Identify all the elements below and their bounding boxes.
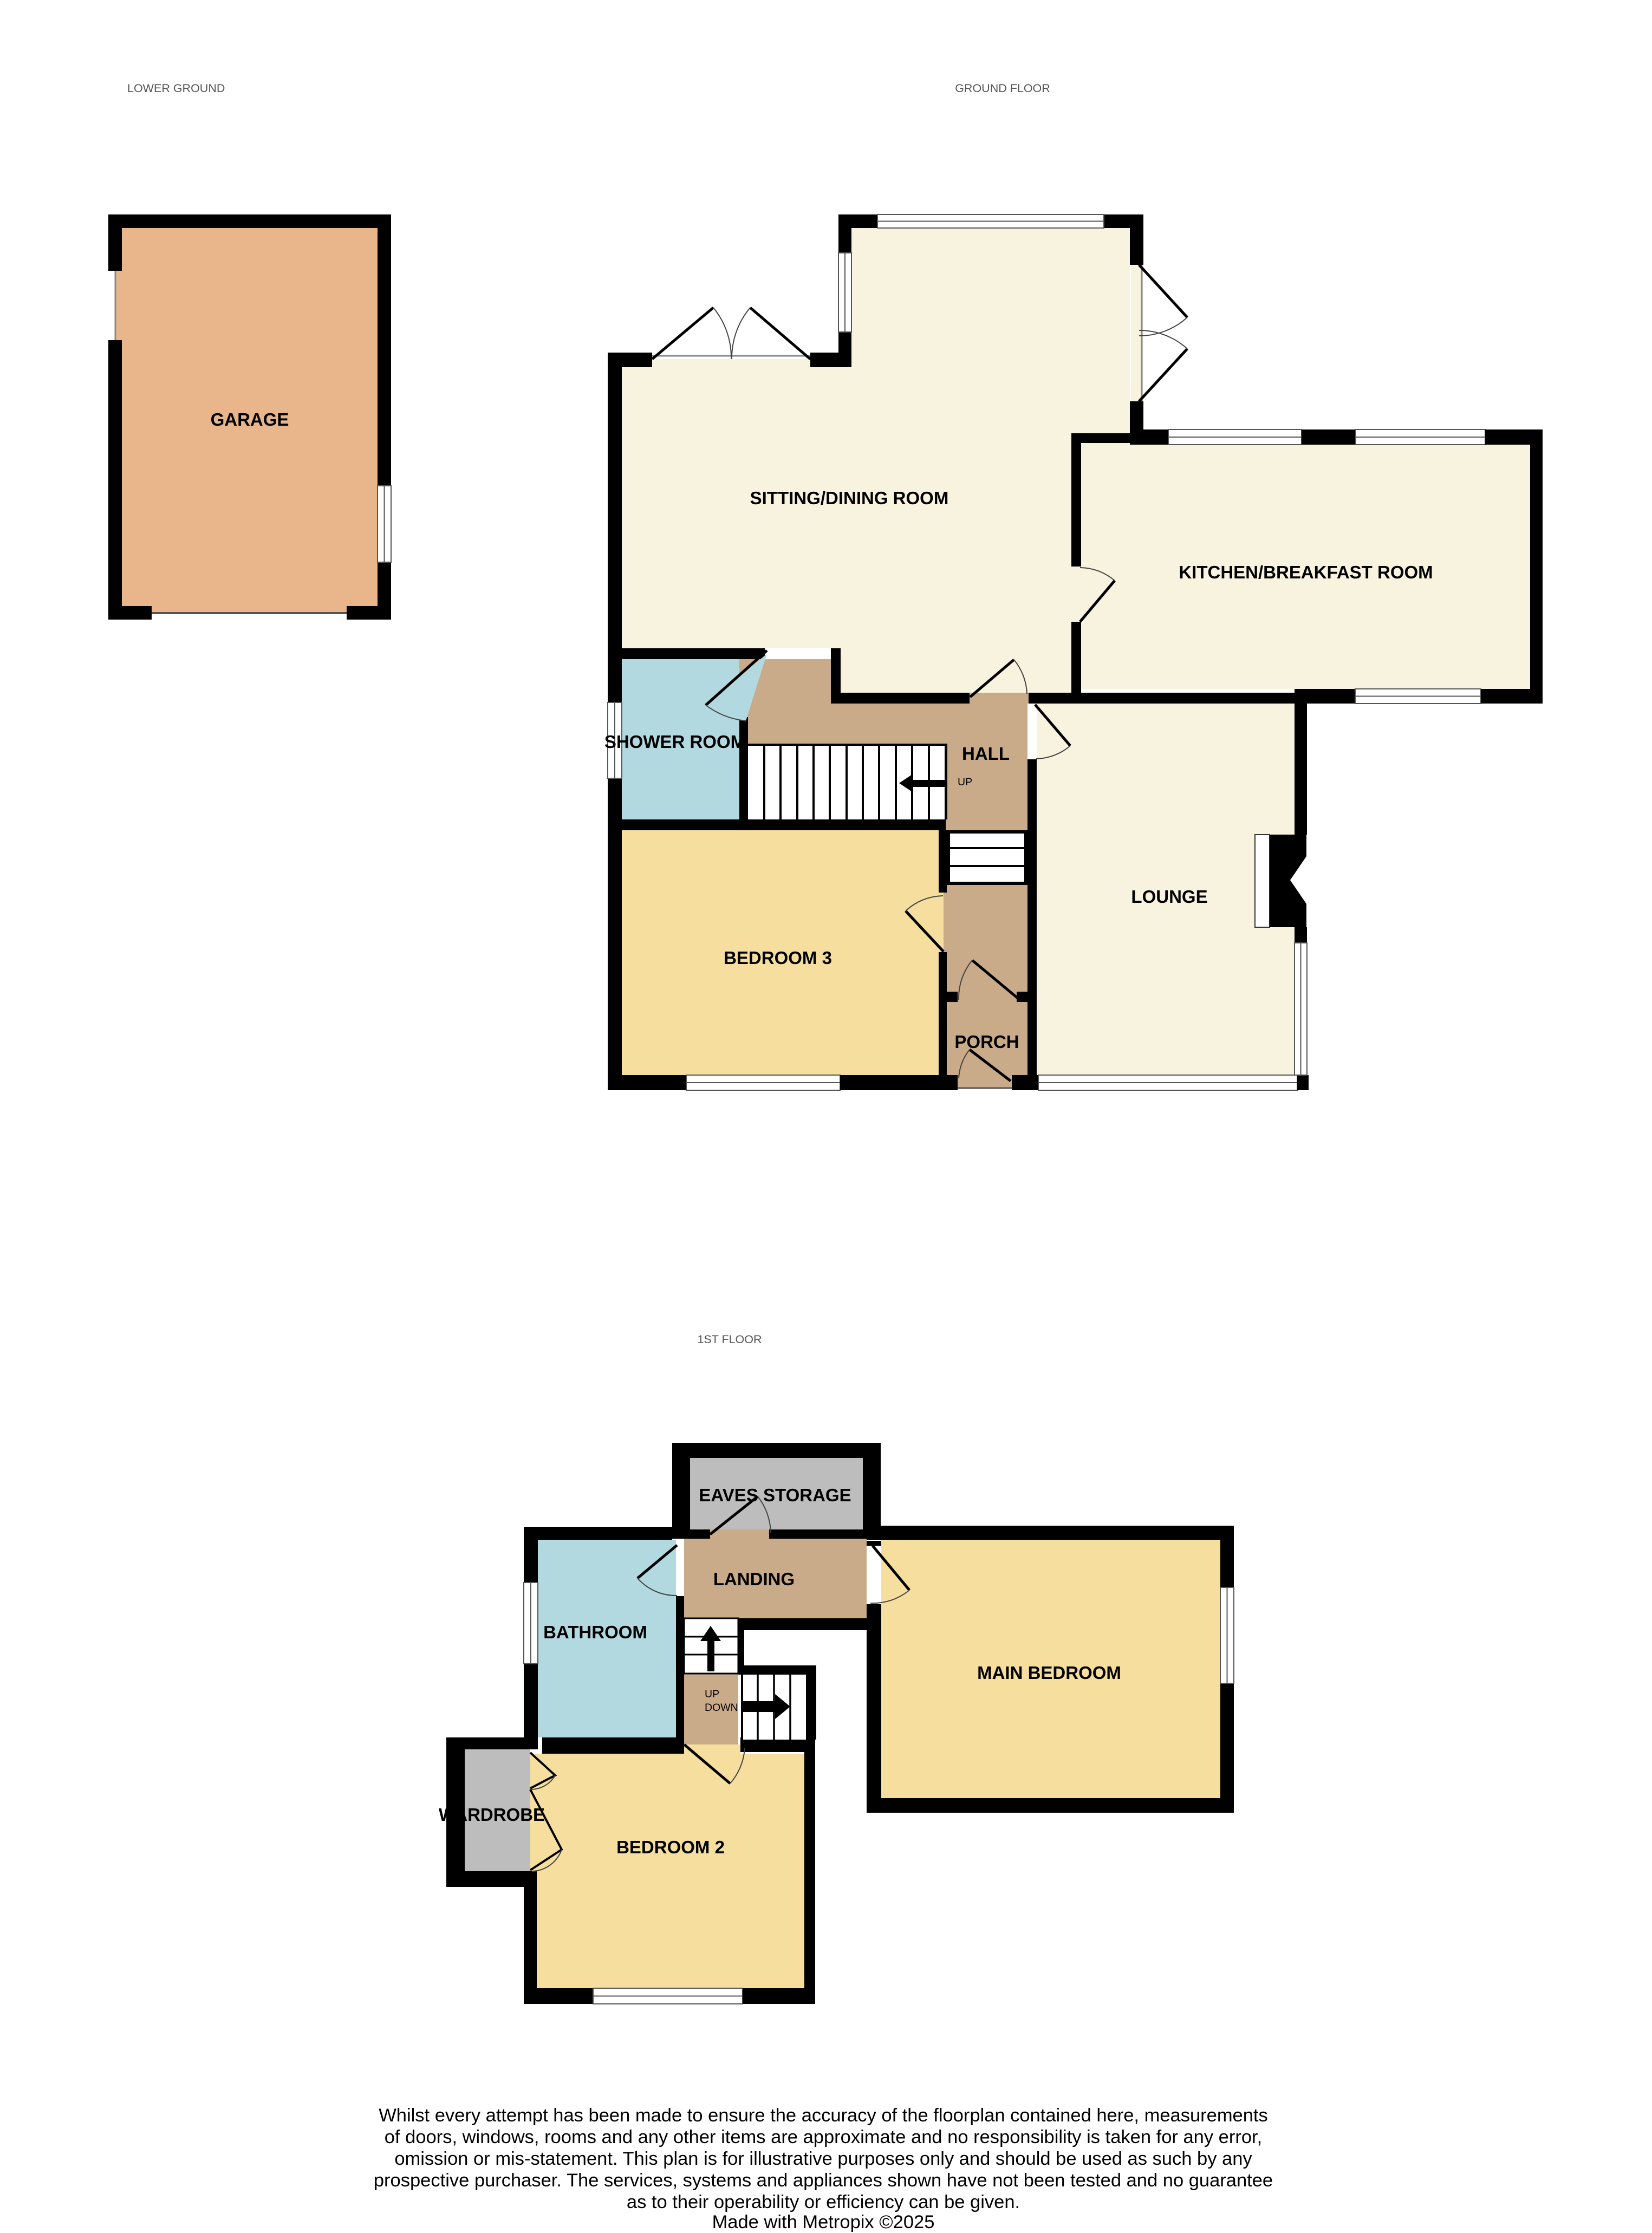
- svg-text:UP: UP: [705, 1688, 719, 1700]
- svg-text:SITTING/DINING ROOM: SITTING/DINING ROOM: [750, 488, 949, 508]
- svg-text:LOWER GROUND: LOWER GROUND: [127, 82, 225, 95]
- svg-text:prospective purchaser. The ser: prospective purchaser. The services, sys…: [374, 2170, 1273, 2191]
- svg-text:GARAGE: GARAGE: [211, 409, 289, 429]
- svg-text:UP: UP: [958, 776, 972, 788]
- svg-text:WARDROBE: WARDROBE: [439, 1805, 545, 1825]
- svg-text:EAVES STORAGE: EAVES STORAGE: [699, 1485, 851, 1505]
- svg-text:DOWN: DOWN: [705, 1702, 738, 1714]
- svg-text:1ST FLOOR: 1ST FLOOR: [697, 1333, 762, 1346]
- svg-text:BATHROOM: BATHROOM: [543, 1622, 647, 1642]
- svg-text:BEDROOM 3: BEDROOM 3: [724, 948, 832, 968]
- svg-text:BEDROOM 2: BEDROOM 2: [616, 1837, 725, 1857]
- svg-text:Made with Metropix ©2025: Made with Metropix ©2025: [712, 2212, 935, 2232]
- svg-text:KITCHEN/BREAKFAST ROOM: KITCHEN/BREAKFAST ROOM: [1179, 562, 1433, 582]
- svg-text:HALL: HALL: [962, 744, 1010, 764]
- svg-text:MAIN BEDROOM: MAIN BEDROOM: [977, 1663, 1121, 1683]
- svg-text:omission or mis-statement. Thi: omission or mis-statement. This plan is …: [394, 2149, 1252, 2169]
- svg-text:SHOWER ROOM: SHOWER ROOM: [604, 732, 745, 752]
- svg-text:GROUND FLOOR: GROUND FLOOR: [955, 82, 1050, 95]
- svg-text:LOUNGE: LOUNGE: [1131, 887, 1207, 907]
- svg-text:LANDING: LANDING: [713, 1569, 795, 1589]
- svg-text:of doors, windows, rooms and a: of doors, windows, rooms and any other i…: [385, 2127, 1262, 2147]
- svg-text:Whilst every attempt has been: Whilst every attempt has been made to en…: [379, 2105, 1268, 2126]
- svg-text:PORCH: PORCH: [954, 1032, 1019, 1052]
- svg-text:as to their operability or eff: as to their operability or efficiency ca…: [627, 2192, 1020, 2212]
